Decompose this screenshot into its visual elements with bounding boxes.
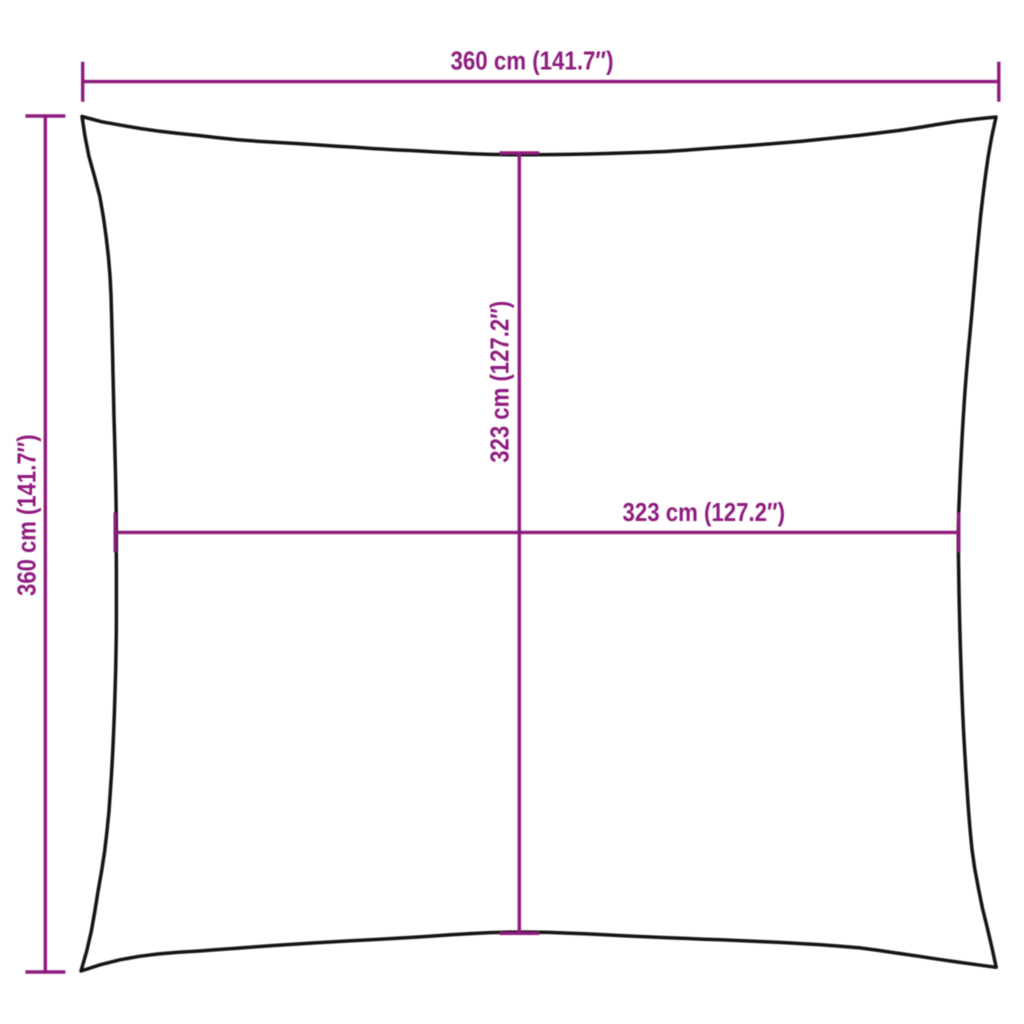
svg-text:360 cm (141.7″): 360 cm (141.7″): [451, 46, 614, 76]
svg-text:323 cm (127.2″): 323 cm (127.2″): [623, 497, 786, 527]
svg-text:360 cm (141.7″): 360 cm (141.7″): [12, 434, 42, 596]
svg-text:323 cm (127.2″): 323 cm (127.2″): [485, 301, 515, 463]
